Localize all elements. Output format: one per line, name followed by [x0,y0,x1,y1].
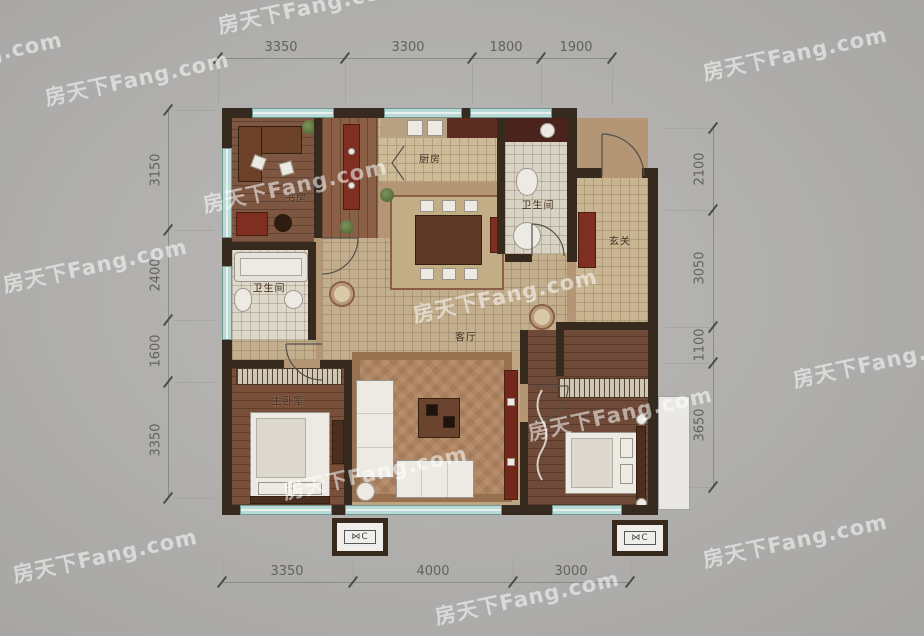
wall [505,254,532,262]
dim-ext [513,558,514,580]
kitchen-sink [407,120,423,136]
window [552,505,622,515]
kitchen-label: 厨房 [419,151,441,166]
ac-platform: ⋈C [332,518,388,556]
dim-right-2: 3050 [693,251,708,284]
dim-bottom-2: 4000 [416,564,449,579]
master-dresser [332,420,344,464]
dim-ext [630,558,631,580]
toilet-icon [234,288,252,312]
dining-table [415,215,482,265]
tv-decor [507,458,515,466]
dim-left-1: 3150 [149,153,164,186]
living-label: 客厅 [455,329,477,344]
plant-icon [340,220,354,234]
coffee-table-tray [443,416,455,428]
coffee-table-tray [426,404,438,416]
wall [642,168,658,178]
pillow [620,464,633,484]
shower-stool [513,222,541,250]
dining-chair [464,200,478,212]
wall [556,322,648,330]
ac-symbol: ⋈C [624,531,655,545]
master-wardrobe [236,368,342,385]
master-duvet [256,418,306,478]
dim-line-top [218,58,612,59]
study-sofa [236,212,268,236]
watermark: 房天下Fang.com [10,521,200,589]
pillow [620,438,633,458]
kitchen-stove [427,120,443,136]
shoe-cabinet [578,212,596,268]
dim-ext [345,64,346,104]
master-label: 主卧室 [272,393,305,408]
tv-console [504,370,518,500]
tv-decor [507,398,515,406]
window-balcony [345,505,502,515]
bath-top-vanity [505,118,567,142]
dim-ext [174,110,214,111]
dim-right-4: 3650 [693,408,708,441]
bedroom2-duvet [571,438,613,488]
study-desk-return [238,126,262,182]
dining-chair [442,200,456,212]
wall [497,118,505,254]
dim-left-3: 1600 [149,334,164,367]
pedestal-sink [284,290,303,309]
plant-icon [380,188,394,202]
dim-ext [174,498,214,499]
ac-platform: ⋈C [612,520,668,556]
dim-ext [666,210,710,211]
floor-medallion [329,281,355,307]
window [222,266,232,340]
wall [575,168,602,178]
dim-line-left [168,110,169,498]
ac-symbol: ⋈C [344,530,375,544]
watermark: 房天下Fang.com [42,44,232,112]
dim-top-4: 1900 [559,40,592,55]
wall [308,242,316,340]
bathtub [234,252,308,282]
wall [556,322,564,376]
entry-label: 玄关 [609,233,631,248]
dim-ext [174,320,214,321]
toilet-icon [516,168,538,196]
dim-ext [666,363,710,364]
dim-top-3: 1800 [489,40,522,55]
dim-top-1: 3350 [264,40,297,55]
wall [520,330,528,384]
floor-medallion [529,304,555,330]
wall [567,108,577,262]
dining-chair [420,200,434,212]
dim-top-2: 3300 [391,40,424,55]
window [252,108,334,118]
study-table [274,214,292,232]
bedroom2-headboard [636,426,646,500]
wall [232,242,316,250]
dim-left-4: 3350 [149,423,164,456]
sink-icon [540,123,555,138]
dining-chair [442,268,456,280]
watermark: 房天下Fang.com [790,326,924,394]
cabinet-knob [348,148,355,155]
wall [232,360,284,368]
dim-line-right [713,128,714,487]
corridor-floor [232,340,316,360]
window [470,108,552,118]
watermark: 房天下Fang.com [700,19,890,87]
dining-chair [420,268,434,280]
watermark: 房天下Fang.com [432,563,622,631]
watermark: 房天下Fang.com [700,506,890,574]
kitchen-marble-counter [447,118,497,138]
dim-ext [472,64,473,104]
wall [648,168,658,515]
dim-ext [222,558,223,580]
dim-ext [612,64,613,104]
dim-bottom-1: 3350 [270,564,303,579]
dim-ext [541,64,542,104]
dim-ext [353,558,354,580]
dim-right-1: 2100 [693,152,708,185]
wall [520,422,528,505]
floorplan-photo: { "watermark": { "text": "房天下Fang.com", … [0,0,924,636]
window [240,505,332,515]
dim-ext [174,382,214,383]
dining-chair [464,268,478,280]
window [384,108,462,118]
dim-right-3: 1100 [693,328,708,361]
bath-top-label: 卫生间 [522,197,555,212]
dim-ext [666,128,710,129]
watermark: 房天下Fang.com [215,0,405,40]
bath-left-label: 卫生间 [253,280,286,295]
